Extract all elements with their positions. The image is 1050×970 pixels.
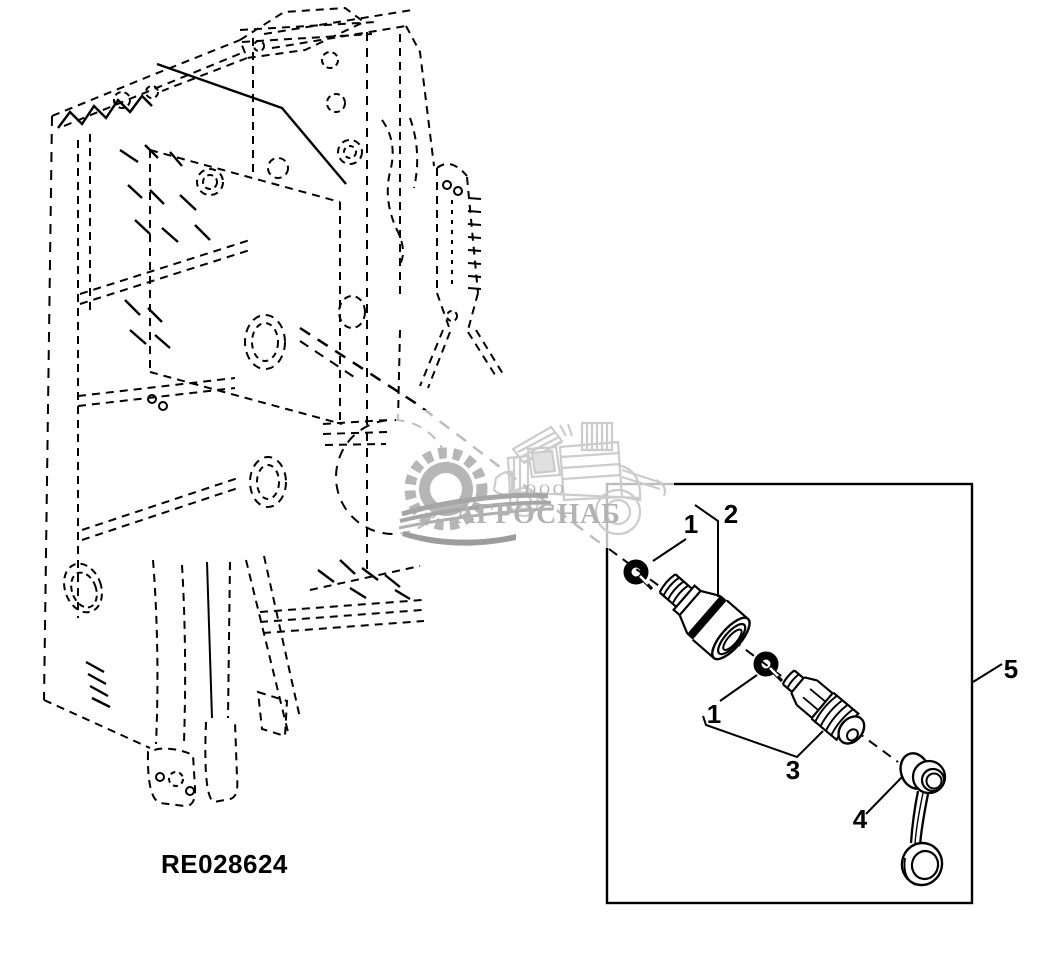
o-ring-rear bbox=[758, 656, 783, 682]
callout-5-kit: 5 bbox=[998, 656, 1024, 682]
coupler-receptacle bbox=[648, 562, 756, 666]
callout-1-rear-oring: 1 bbox=[701, 701, 727, 727]
machine-outline-drawing bbox=[44, 8, 604, 806]
watermark-company-name: АГРОСНАБ bbox=[440, 499, 636, 531]
watermark-org-form-text: ООО bbox=[518, 482, 574, 499]
callout-3-valve: 3 bbox=[780, 757, 806, 783]
dust-plug-with-strap bbox=[896, 750, 946, 889]
figure-part-number: RE028624 bbox=[161, 849, 288, 880]
leader-line-1b bbox=[720, 675, 757, 701]
breakaway-valve bbox=[775, 662, 872, 751]
o-ring-front bbox=[628, 564, 653, 590]
exploded-view bbox=[609, 549, 946, 889]
callout-4-dust-plug: 4 bbox=[847, 806, 873, 832]
leader-lines bbox=[653, 505, 1002, 814]
parts-catalog-page: 1 2 1 3 4 5 RE028624 ООО АГРОСНАБ bbox=[0, 0, 1050, 970]
callout-2-coupler: 2 bbox=[718, 501, 744, 527]
callout-1-front-oring: 1 bbox=[678, 511, 704, 537]
